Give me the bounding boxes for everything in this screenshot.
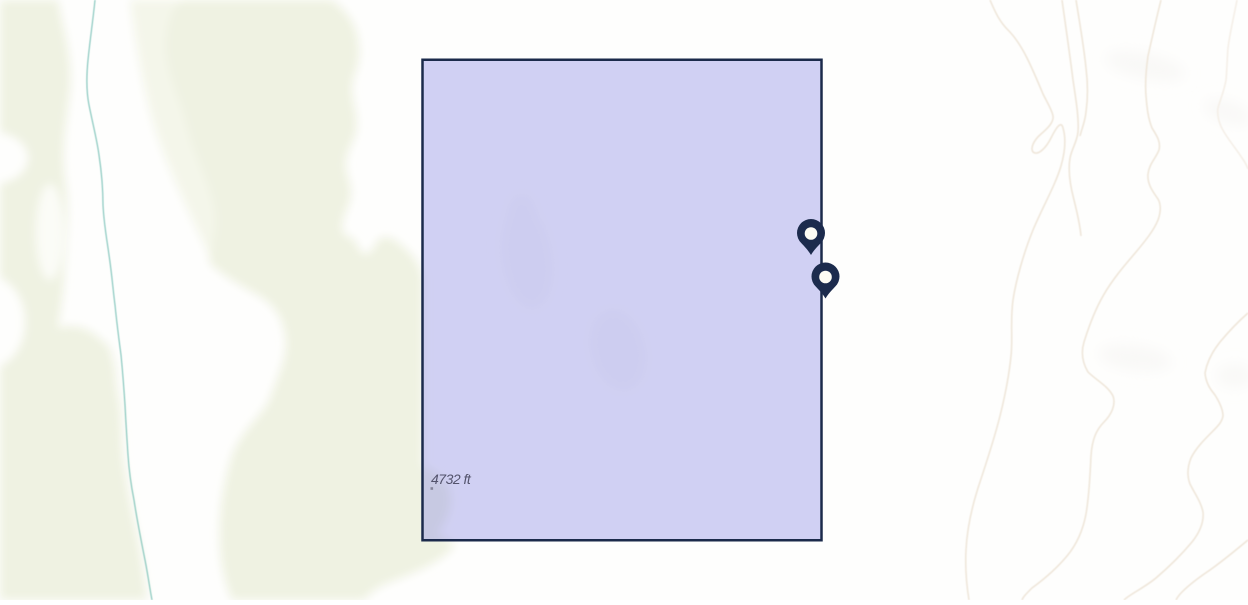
- svg-text:4732 ft: 4732 ft: [431, 471, 472, 487]
